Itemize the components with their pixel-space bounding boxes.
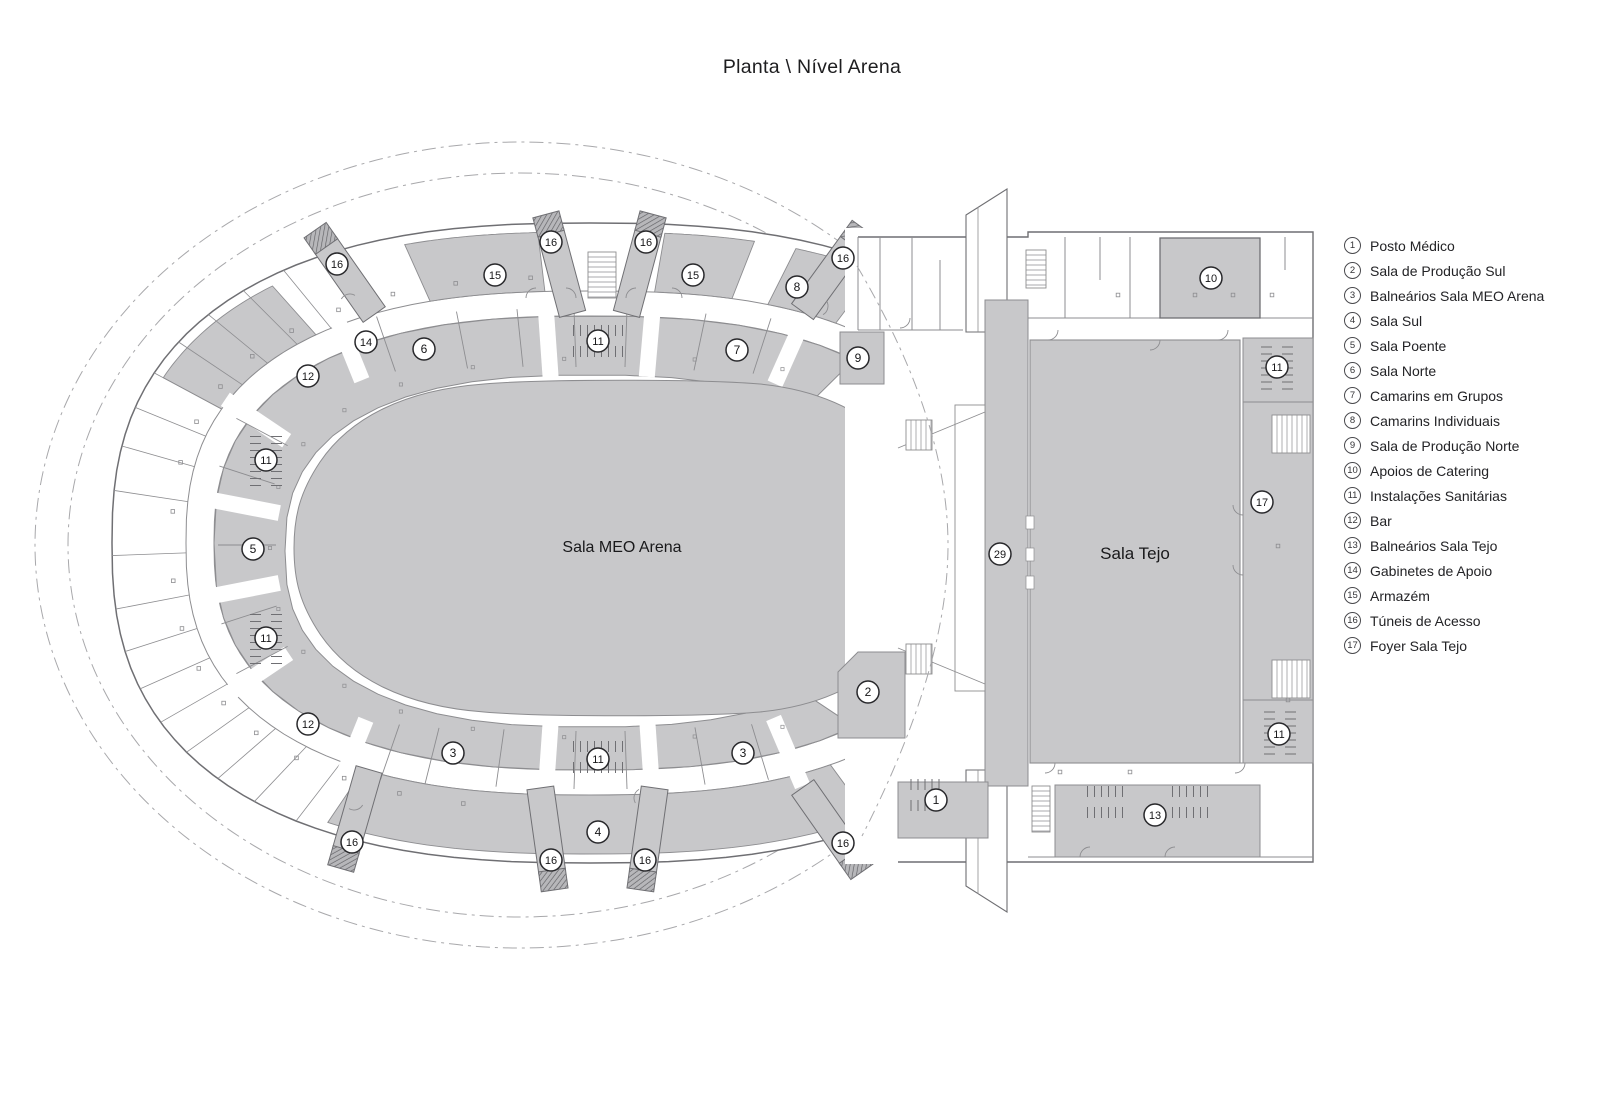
svg-text:17: 17 xyxy=(1256,497,1268,509)
svg-text:15: 15 xyxy=(489,270,501,282)
plan-marker-29: 29 xyxy=(989,543,1011,565)
legend-item-9: 9Sala de Produção Norte xyxy=(1344,433,1594,458)
plan-marker-3: 3 xyxy=(732,742,754,764)
legend-item-12: 12Bar xyxy=(1344,508,1594,533)
plan-marker-11: 11 xyxy=(255,627,277,649)
legend-number-badge: 1 xyxy=(1344,237,1361,254)
legend-label: Sala Sul xyxy=(1370,313,1422,329)
legend-label: Bar xyxy=(1370,513,1392,529)
plan-marker-3: 3 xyxy=(442,742,464,764)
plan-marker-12: 12 xyxy=(297,365,319,387)
svg-text:16: 16 xyxy=(640,237,652,249)
svg-text:11: 11 xyxy=(592,754,603,766)
svg-text:11: 11 xyxy=(592,336,603,348)
svg-text:6: 6 xyxy=(421,342,428,356)
legend-label: Posto Médico xyxy=(1370,238,1455,254)
legend-label: Gabinetes de Apoio xyxy=(1370,563,1492,579)
legend-label: Balneários Sala Tejo xyxy=(1370,538,1497,554)
legend-item-2: 2Sala de Produção Sul xyxy=(1344,258,1594,283)
legend-label: Sala de Produção Norte xyxy=(1370,438,1519,454)
legend-item-3: 3Balneários Sala MEO Arena xyxy=(1344,283,1594,308)
plan-marker-4: 4 xyxy=(587,821,609,843)
legend-item-8: 8Camarins Individuais xyxy=(1344,408,1594,433)
legend-label: Foyer Sala Tejo xyxy=(1370,638,1467,654)
plan-marker-11: 11 xyxy=(587,330,609,352)
legend-item-11: 11Instalações Sanitárias xyxy=(1344,483,1594,508)
svg-text:3: 3 xyxy=(740,746,747,760)
legend-number-badge: 10 xyxy=(1344,462,1361,479)
svg-text:16: 16 xyxy=(331,259,343,271)
legend-item-15: 15Armazém xyxy=(1344,583,1594,608)
svg-text:11: 11 xyxy=(260,455,271,467)
svg-text:2: 2 xyxy=(865,685,872,699)
plan-marker-10: 10 xyxy=(1200,267,1222,289)
plan-marker-16: 16 xyxy=(832,247,854,269)
legend-number-badge: 3 xyxy=(1344,287,1361,304)
plan-marker-16: 16 xyxy=(832,832,854,854)
svg-text:16: 16 xyxy=(545,237,557,249)
svg-text:1: 1 xyxy=(933,793,940,807)
plan-marker-2: 2 xyxy=(857,681,879,703)
svg-text:15: 15 xyxy=(687,270,699,282)
plan-marker-15: 15 xyxy=(682,264,704,286)
plan-marker-15: 15 xyxy=(484,264,506,286)
plan-marker-11: 11 xyxy=(587,748,609,770)
plan-marker-16: 16 xyxy=(634,849,656,871)
plan-marker-8: 8 xyxy=(786,276,808,298)
svg-text:3: 3 xyxy=(450,746,457,760)
legend-label: Camarins Individuais xyxy=(1370,413,1500,429)
svg-text:11: 11 xyxy=(260,633,271,645)
legend-item-14: 14Gabinetes de Apoio xyxy=(1344,558,1594,583)
legend-label: Apoios de Catering xyxy=(1370,463,1489,479)
svg-text:12: 12 xyxy=(302,719,314,731)
svg-text:4: 4 xyxy=(595,825,602,839)
plan-marker-6: 6 xyxy=(413,338,435,360)
legend-item-16: 16Túneis de Acesso xyxy=(1344,608,1594,633)
plan-marker-1: 1 xyxy=(925,789,947,811)
plan-marker-9: 9 xyxy=(847,347,869,369)
plan-marker-11: 11 xyxy=(255,449,277,471)
legend-number-badge: 7 xyxy=(1344,387,1361,404)
legend-number-badge: 17 xyxy=(1344,637,1361,654)
legend-item-13: 13Balneários Sala Tejo xyxy=(1344,533,1594,558)
svg-text:14: 14 xyxy=(360,337,372,349)
svg-text:29: 29 xyxy=(994,549,1006,561)
legend-label: Túneis de Acesso xyxy=(1370,613,1481,629)
svg-text:12: 12 xyxy=(302,371,314,383)
legend-number-badge: 2 xyxy=(1344,262,1361,279)
legend-item-10: 10Apoios de Catering xyxy=(1344,458,1594,483)
legend-label: Camarins em Grupos xyxy=(1370,388,1503,404)
legend-label: Sala Norte xyxy=(1370,363,1436,379)
legend-item-5: 5Sala Poente xyxy=(1344,333,1594,358)
legend-label: Sala Poente xyxy=(1370,338,1446,354)
svg-text:5: 5 xyxy=(250,542,257,556)
svg-text:11: 11 xyxy=(1271,362,1282,374)
svg-text:16: 16 xyxy=(837,253,849,265)
svg-text:16: 16 xyxy=(545,855,557,867)
legend-item-17: 17Foyer Sala Tejo xyxy=(1344,633,1594,658)
legend-number-badge: 11 xyxy=(1344,487,1361,504)
legend-item-6: 6Sala Norte xyxy=(1344,358,1594,383)
plan-marker-16: 16 xyxy=(341,831,363,853)
plan-marker-14: 14 xyxy=(355,331,377,353)
svg-text:13: 13 xyxy=(1149,810,1161,822)
plan-marker-16: 16 xyxy=(540,231,562,253)
plan-marker-13: 13 xyxy=(1144,804,1166,826)
plan-marker-11: 11 xyxy=(1266,356,1288,378)
legend-number-badge: 5 xyxy=(1344,337,1361,354)
legend-number-badge: 13 xyxy=(1344,537,1361,554)
sala-tejo-label: Sala Tejo xyxy=(1100,544,1170,563)
legend-item-4: 4Sala Sul xyxy=(1344,308,1594,333)
legend-number-badge: 16 xyxy=(1344,612,1361,629)
plan-marker-5: 5 xyxy=(242,538,264,560)
legend-label: Balneários Sala MEO Arena xyxy=(1370,288,1544,304)
legend-number-badge: 14 xyxy=(1344,562,1361,579)
svg-text:9: 9 xyxy=(855,351,862,365)
legend-label: Armazém xyxy=(1370,588,1430,604)
legend-number-badge: 4 xyxy=(1344,312,1361,329)
svg-text:7: 7 xyxy=(734,343,741,357)
svg-text:8: 8 xyxy=(794,280,801,294)
plan-marker-12: 12 xyxy=(297,713,319,735)
legend: 1Posto Médico2Sala de Produção Sul3Balne… xyxy=(1344,233,1594,658)
svg-text:10: 10 xyxy=(1205,273,1217,285)
svg-text:16: 16 xyxy=(837,838,849,850)
legend-item-7: 7Camarins em Grupos xyxy=(1344,383,1594,408)
plan-marker-7: 7 xyxy=(726,339,748,361)
legend-label: Instalações Sanitárias xyxy=(1370,488,1507,504)
plan-marker-16: 16 xyxy=(540,849,562,871)
legend-number-badge: 9 xyxy=(1344,437,1361,454)
sala-meo-arena-label: Sala MEO Arena xyxy=(562,539,681,556)
svg-text:16: 16 xyxy=(639,855,651,867)
plan-marker-17: 17 xyxy=(1251,491,1273,513)
page: Planta \ Nível Arena Sala MEO ArenaSala … xyxy=(0,0,1600,1101)
legend-item-1: 1Posto Médico xyxy=(1344,233,1594,258)
legend-number-badge: 6 xyxy=(1344,362,1361,379)
legend-number-badge: 12 xyxy=(1344,512,1361,529)
legend-number-badge: 8 xyxy=(1344,412,1361,429)
plan-marker-16: 16 xyxy=(635,231,657,253)
legend-number-badge: 15 xyxy=(1344,587,1361,604)
legend-label: Sala de Produção Sul xyxy=(1370,263,1505,279)
plan-marker-11: 11 xyxy=(1268,723,1290,745)
plan-marker-16: 16 xyxy=(326,253,348,275)
svg-text:16: 16 xyxy=(346,837,358,849)
svg-text:11: 11 xyxy=(1273,729,1284,741)
